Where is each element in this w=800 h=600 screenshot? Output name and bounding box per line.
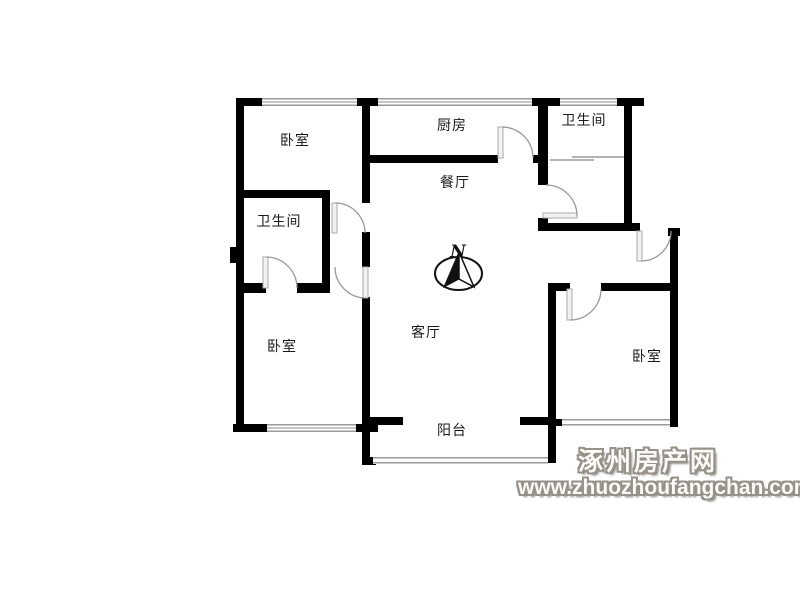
door-panel — [498, 127, 503, 158]
door-panel — [567, 289, 572, 320]
door-panels — [263, 127, 642, 320]
room-label-bedroom-bottom-left: 卧室 — [267, 336, 297, 356]
door-panel — [263, 257, 268, 288]
bathroom-fixture-lines — [550, 157, 624, 160]
watermark: 涿州房产网 www.zhuozhoufangchan.com — [518, 450, 794, 498]
door-swing-arc — [546, 185, 577, 216]
room-label-bathroom-top-right: 卫生间 — [562, 110, 607, 130]
door-panel — [332, 203, 337, 233]
door-swing-arc — [266, 257, 297, 288]
door-swing-arc — [502, 127, 533, 158]
room-label-dining-room: 餐厅 — [440, 172, 470, 192]
room-label-bathroom-left: 卫生间 — [257, 211, 302, 231]
north-label: N — [449, 242, 467, 262]
room-label-bedroom-top-left: 卧室 — [280, 130, 310, 150]
floorplan-canvas: N 卧室 厨房 卫生间 餐厅 卫生间 卧室 客厅 卧室 阳台 涿州房产网 www… — [0, 0, 800, 600]
door-swing-arc — [570, 289, 601, 320]
door-swing-arc — [641, 231, 671, 261]
room-label-balcony: 阳台 — [437, 420, 467, 440]
door-panel — [543, 213, 577, 218]
door-swing-arcs — [266, 127, 671, 320]
north-compass-icon: N — [435, 242, 482, 290]
watermark-site-url: www.zhuozhoufangchan.com — [518, 477, 794, 498]
door-swing-arc — [335, 267, 366, 298]
door-panel — [637, 231, 642, 261]
plan-graphics: N — [0, 0, 800, 600]
room-label-bedroom-bottom-right: 卧室 — [632, 346, 662, 366]
watermark-site-name: 涿州房产网 — [510, 450, 786, 475]
room-label-living-room: 客厅 — [411, 322, 441, 342]
door-swing-arc — [335, 203, 365, 233]
room-label-kitchen: 厨房 — [437, 115, 467, 135]
door-panel — [363, 267, 368, 298]
